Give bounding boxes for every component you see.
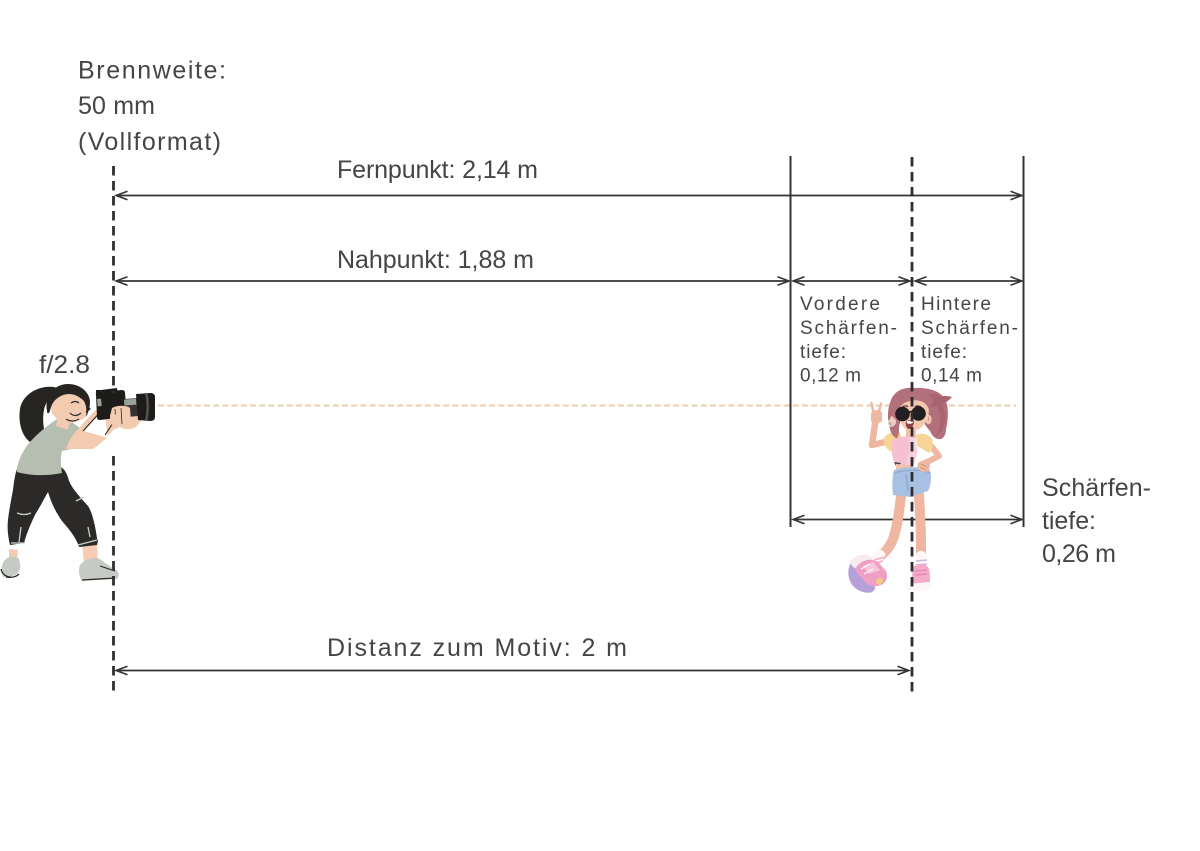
- svg-text:50 mm: 50 mm: [78, 92, 155, 120]
- svg-text:Nahpunkt: 1,88 m: Nahpunkt: 1,88 m: [337, 246, 534, 274]
- svg-text:Schärfen-: Schärfen-: [1042, 474, 1151, 502]
- svg-text:f/2.8: f/2.8: [39, 351, 90, 379]
- svg-text:0,12 m: 0,12 m: [800, 366, 861, 387]
- svg-text:tiefe:: tiefe:: [1042, 507, 1096, 535]
- svg-text:Schärfen-: Schärfen-: [800, 318, 897, 339]
- svg-text:tiefe:: tiefe:: [800, 342, 846, 363]
- svg-text:Schärfen-: Schärfen-: [921, 318, 1018, 339]
- svg-text:Vordere: Vordere: [800, 294, 880, 315]
- svg-text:(Vollformat): (Vollformat): [78, 128, 221, 156]
- svg-text:0,14 m: 0,14 m: [921, 366, 982, 387]
- svg-text:tiefe:: tiefe:: [921, 342, 967, 363]
- svg-text:0,26 m: 0,26 m: [1042, 540, 1116, 568]
- svg-text:Hintere: Hintere: [921, 294, 991, 315]
- svg-text:Fernpunkt: 2,14 m: Fernpunkt: 2,14 m: [337, 156, 538, 184]
- svg-text:Distanz zum Motiv: 2 m: Distanz zum Motiv: 2 m: [327, 634, 627, 662]
- svg-text:Brennweite:: Brennweite:: [78, 57, 226, 85]
